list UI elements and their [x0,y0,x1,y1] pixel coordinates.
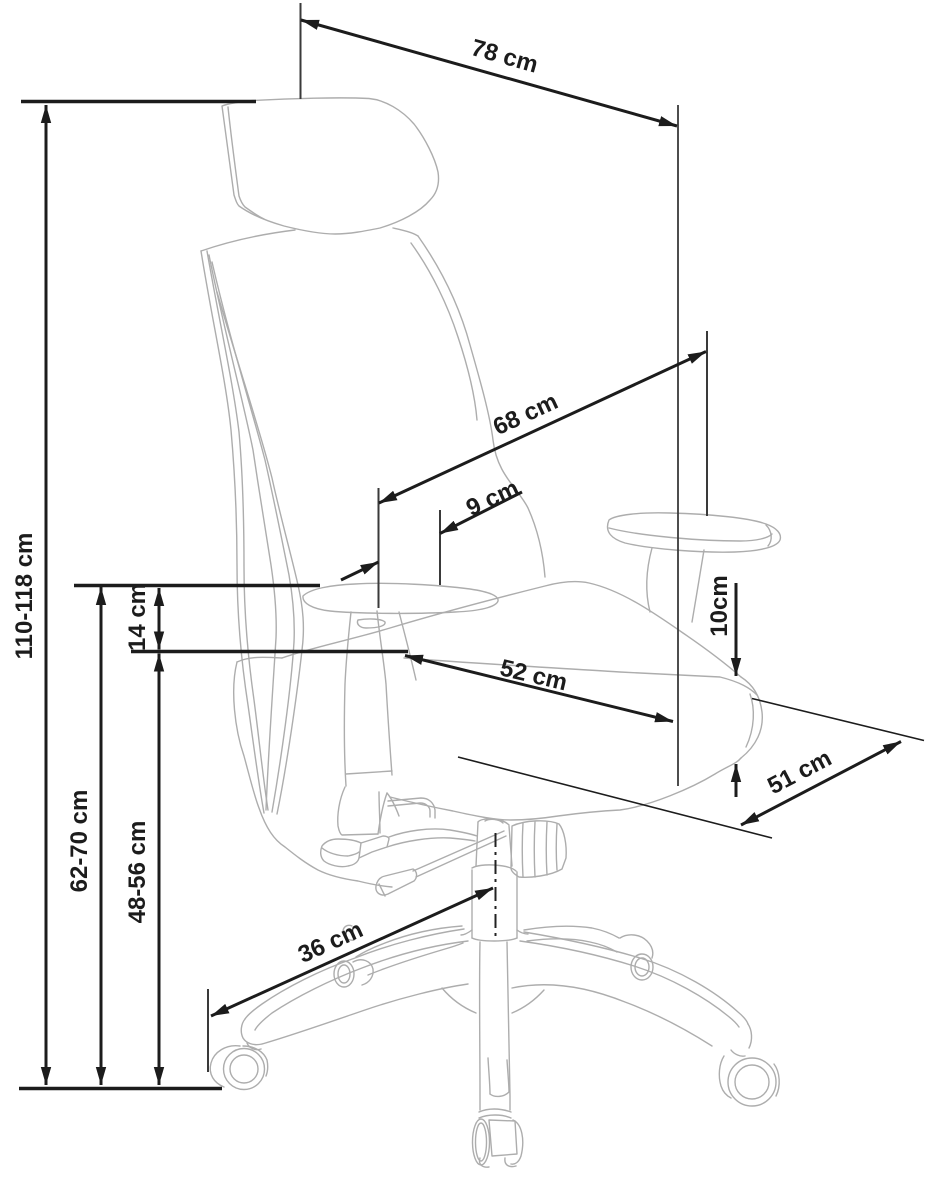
svg-text:62-70 cm: 62-70 cm [66,790,93,893]
svg-text:68 cm: 68 cm [489,388,562,441]
svg-text:48-56 cm: 48-56 cm [124,821,151,924]
svg-text:9 cm: 9 cm [462,475,523,523]
svg-text:78 cm: 78 cm [468,34,541,78]
svg-text:110-118 cm: 110-118 cm [11,533,38,660]
svg-text:52 cm: 52 cm [497,654,569,696]
svg-text:14 cm: 14 cm [124,583,151,651]
svg-text:10cm: 10cm [706,575,733,636]
svg-text:51 cm: 51 cm [763,745,836,800]
